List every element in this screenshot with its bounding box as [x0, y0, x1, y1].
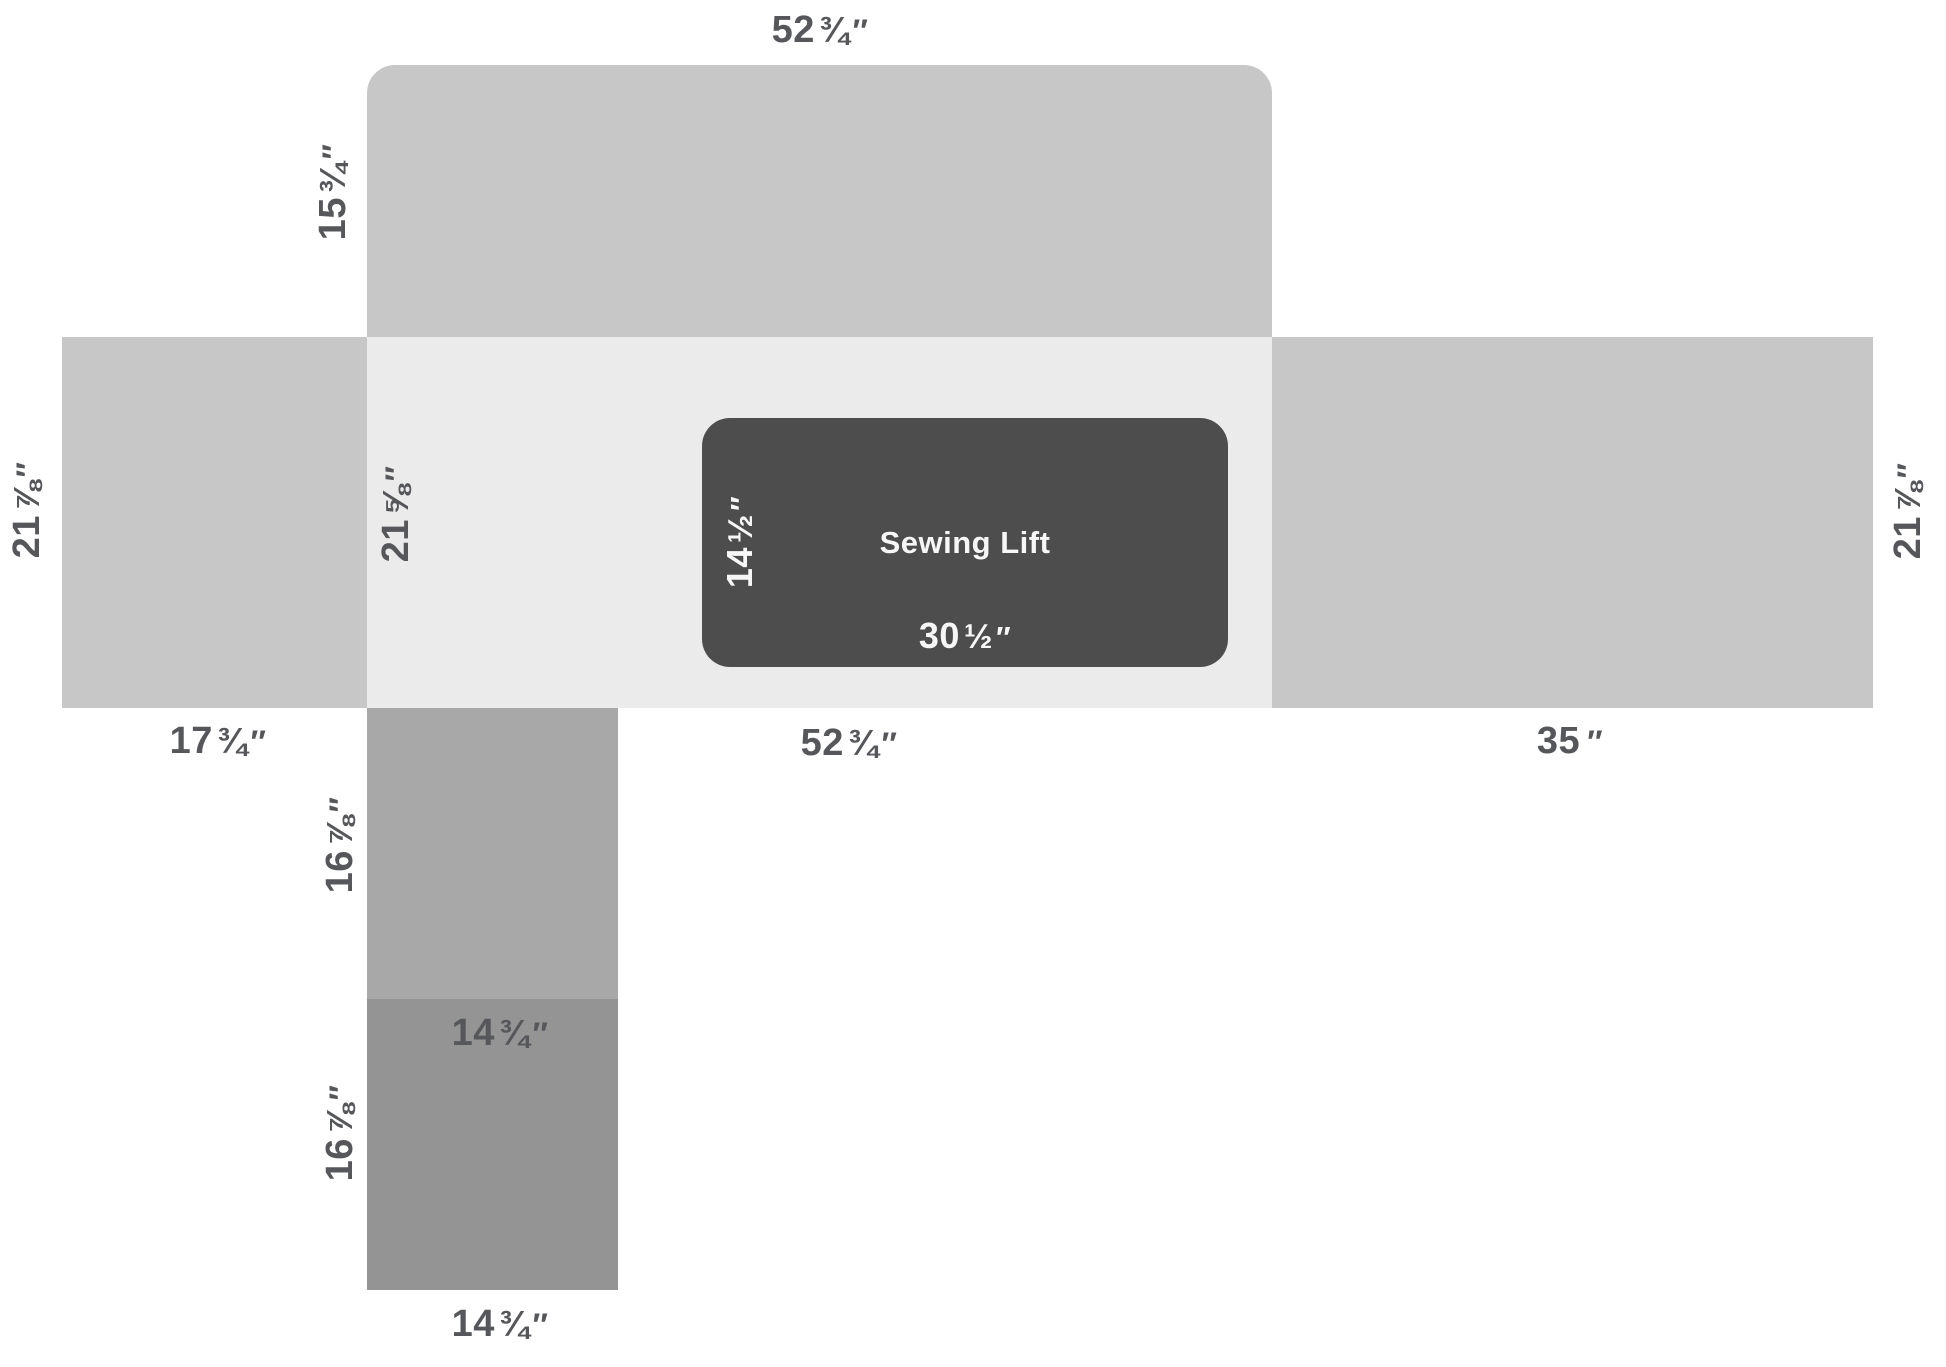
inch-mark: ″	[532, 1018, 548, 1050]
counter-left-shape	[62, 337, 367, 708]
dim-main: 15	[314, 197, 352, 240]
dim-cabinet-lower-width: 14 ¾ ″	[452, 1305, 549, 1343]
dim-fraction: ⅞	[9, 481, 45, 512]
inch-mark: ″	[852, 15, 868, 47]
dim-main: 14	[722, 547, 758, 588]
dim-fraction: ¾	[217, 723, 248, 759]
inch-mark: ″	[1587, 726, 1603, 758]
dim-main: 52	[801, 724, 844, 762]
dim-main: 30	[919, 618, 960, 654]
cabinet-upper-shape	[367, 708, 618, 999]
dim-fraction: ⅞	[322, 816, 358, 847]
dim-counter-center-width: 52 ¾ ″	[801, 724, 898, 762]
inch-mark: ″	[381, 466, 413, 482]
dim-counter-left-depth: 21 ⅞ ″	[8, 462, 46, 559]
dim-fraction: ½	[964, 620, 993, 654]
inch-mark: ″	[532, 1309, 548, 1341]
dim-cabinet-upper-width: 14 ¾ ″	[452, 1014, 549, 1052]
dim-fraction: ¾	[819, 12, 850, 48]
dim-main: 21	[8, 515, 46, 558]
sewing-cabinet-dimension-diagram: Sewing Lift 52 ¾ ″ 15 ¾ ″ 21 ⅞ ″ 21 ⅝ ″ …	[0, 0, 1946, 1367]
dim-fraction: ¾	[848, 725, 879, 761]
dim-fraction: ¾	[499, 1306, 530, 1342]
dim-main: 21	[377, 519, 415, 562]
dim-fraction: ⅞	[1890, 482, 1926, 513]
inch-mark: ″	[12, 462, 44, 478]
dim-main: 17	[170, 722, 213, 760]
dim-counter-left-width: 17 ¾ ″	[170, 722, 267, 760]
dim-lift-depth: 14 ½ ″	[722, 496, 758, 588]
inch-mark: ″	[250, 726, 266, 758]
dim-main: 21	[1889, 516, 1927, 559]
dim-cabinet-upper-height: 16 ⅞ ″	[321, 797, 359, 894]
top-panel-shape	[367, 65, 1272, 337]
inch-mark: ″	[325, 1085, 357, 1101]
dim-fraction: ½	[724, 514, 758, 543]
dim-fraction: ⅞	[322, 1104, 358, 1135]
dim-main: 14	[452, 1014, 495, 1052]
counter-right-shape	[1272, 337, 1873, 708]
dim-counter-center-depth: 21 ⅝ ″	[377, 466, 415, 563]
dim-cabinet-lower-height: 16 ⅞ ″	[321, 1085, 359, 1182]
dim-main: 35	[1537, 722, 1580, 760]
inch-mark: ″	[727, 496, 758, 511]
dim-fraction: ¾	[499, 1015, 530, 1051]
inch-mark: ″	[318, 144, 350, 160]
dim-lift-width: 30 ½ ″	[919, 618, 1011, 654]
dim-main: 16	[321, 1138, 359, 1181]
dim-counter-right-depth: 21 ⅞ ″	[1889, 463, 1927, 560]
dim-fraction: ⅝	[378, 485, 414, 516]
inch-mark: ″	[325, 797, 357, 813]
sewing-lift-label: Sewing Lift	[880, 525, 1051, 561]
dim-main: 52	[772, 11, 815, 49]
dim-top-panel-width: 52 ¾ ″	[772, 11, 869, 49]
dim-main: 16	[321, 850, 359, 893]
inch-mark: ″	[881, 728, 897, 760]
dim-main: 14	[452, 1305, 495, 1343]
dim-top-panel-height: 15 ¾ ″	[314, 144, 352, 241]
inch-mark: ″	[1893, 463, 1925, 479]
dim-counter-right-width: 35 ″	[1537, 722, 1603, 760]
dim-fraction: ¾	[315, 163, 351, 194]
inch-mark: ″	[996, 623, 1011, 654]
